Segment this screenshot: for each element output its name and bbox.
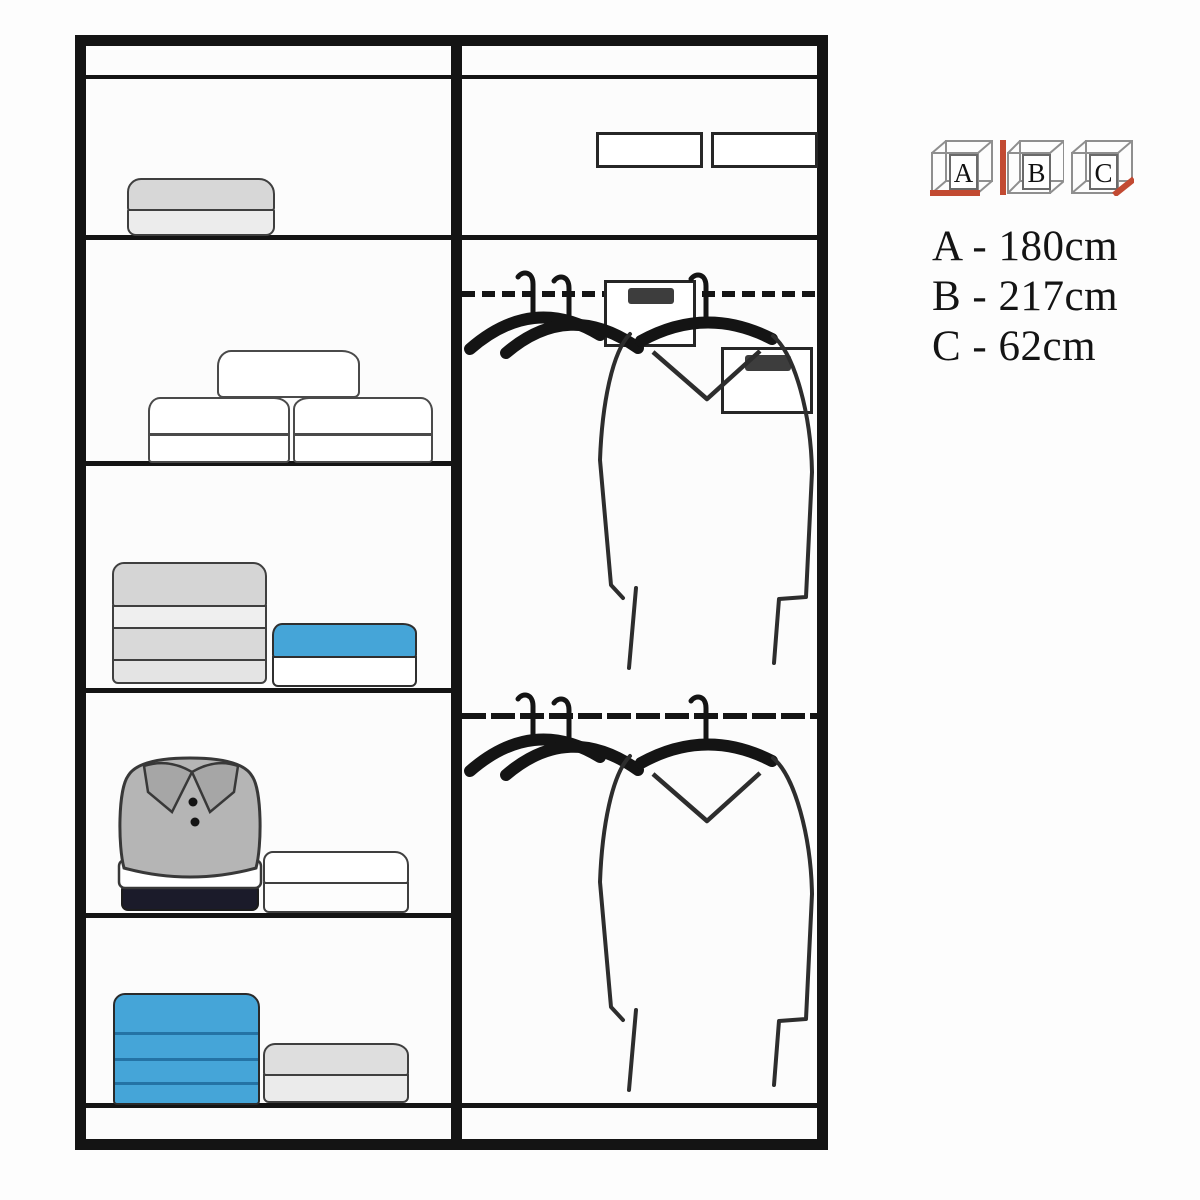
depth-dimension-cube-icon: C: [1070, 138, 1134, 196]
measurement-b: B - 217cm: [932, 272, 1192, 322]
measurement-c: C - 62cm: [932, 322, 1192, 372]
wardrobe-dimension-diagram: { "legend": { "cubes": [ {"letter": "A"}…: [0, 0, 1200, 1200]
cube-letter: B: [1027, 158, 1045, 188]
height-dimension-cube-icon: B: [1000, 138, 1064, 196]
dimension-legend-text: A - 180cm B - 217cm C - 62cm: [932, 222, 1192, 372]
measurement-a: A - 180cm: [932, 222, 1192, 272]
dimension-legend-icons: A B C: [930, 138, 1134, 196]
hangers-and-garments: [86, 46, 817, 1139]
cube-letter: C: [1094, 158, 1112, 188]
cube-letter: A: [954, 158, 974, 188]
width-dimension-cube-icon: A: [930, 138, 994, 196]
wardrobe-frame: [75, 35, 828, 1150]
